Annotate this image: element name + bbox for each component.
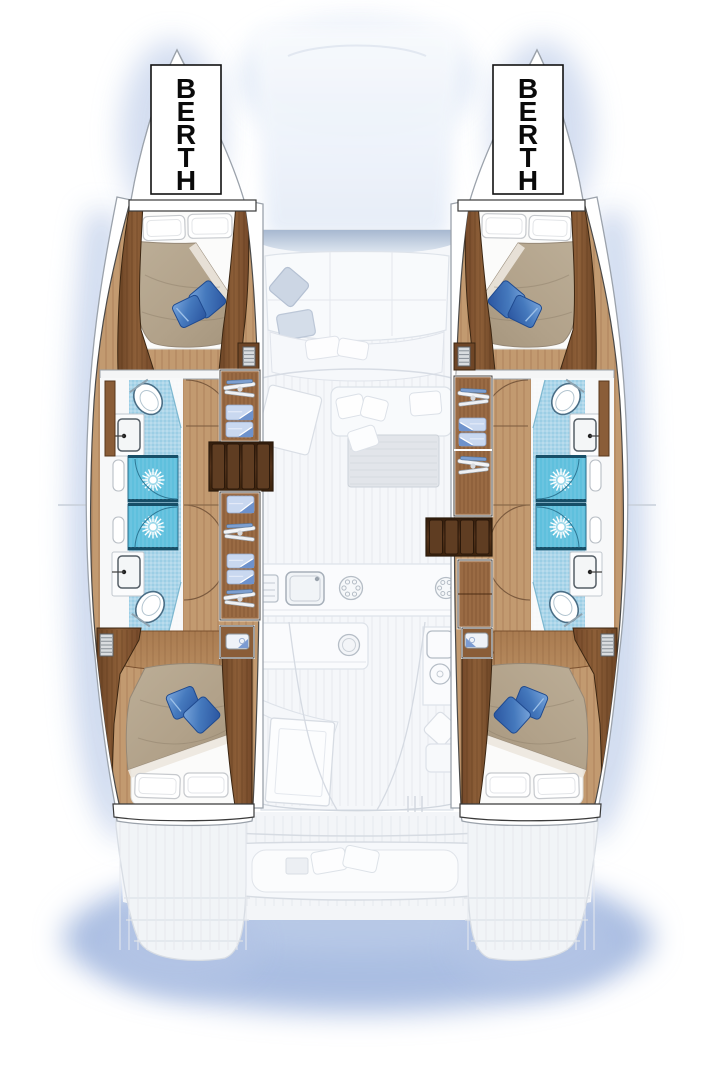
svg-text:BERTH: BERTH xyxy=(518,73,538,196)
svg-text:BERTH: BERTH xyxy=(176,73,196,196)
